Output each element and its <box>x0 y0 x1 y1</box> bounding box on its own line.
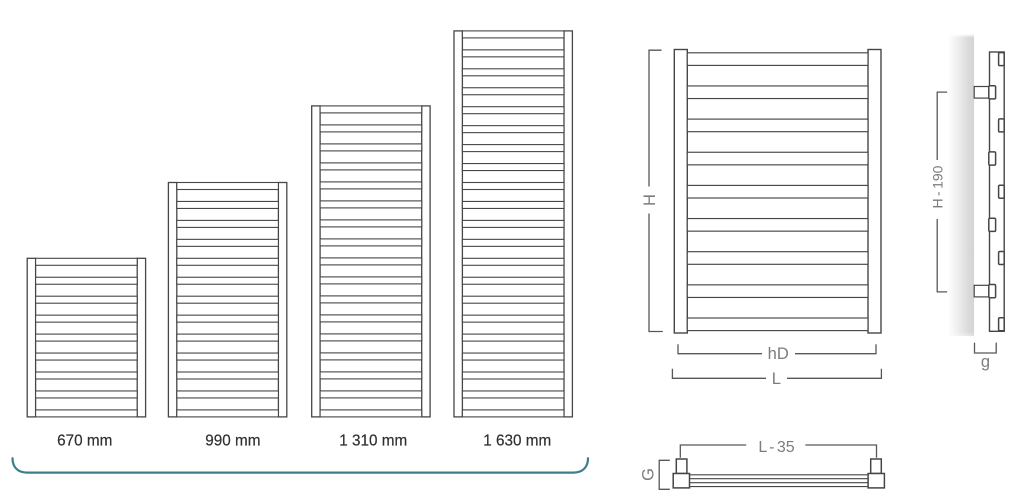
svg-text:G: G <box>640 468 658 481</box>
svg-text:g: g <box>981 353 990 371</box>
svg-text:L - 35: L - 35 <box>758 439 794 456</box>
svg-text:1 310 mm: 1 310 mm <box>339 433 407 450</box>
svg-text:H: H <box>641 194 659 206</box>
svg-text:990 mm: 990 mm <box>205 433 260 450</box>
svg-text:L: L <box>772 370 781 388</box>
svg-text:hD: hD <box>768 345 789 363</box>
svg-text:670 mm: 670 mm <box>57 433 112 450</box>
svg-text:1 630 mm: 1 630 mm <box>483 433 551 450</box>
svg-text:H - 190: H - 190 <box>929 165 945 208</box>
